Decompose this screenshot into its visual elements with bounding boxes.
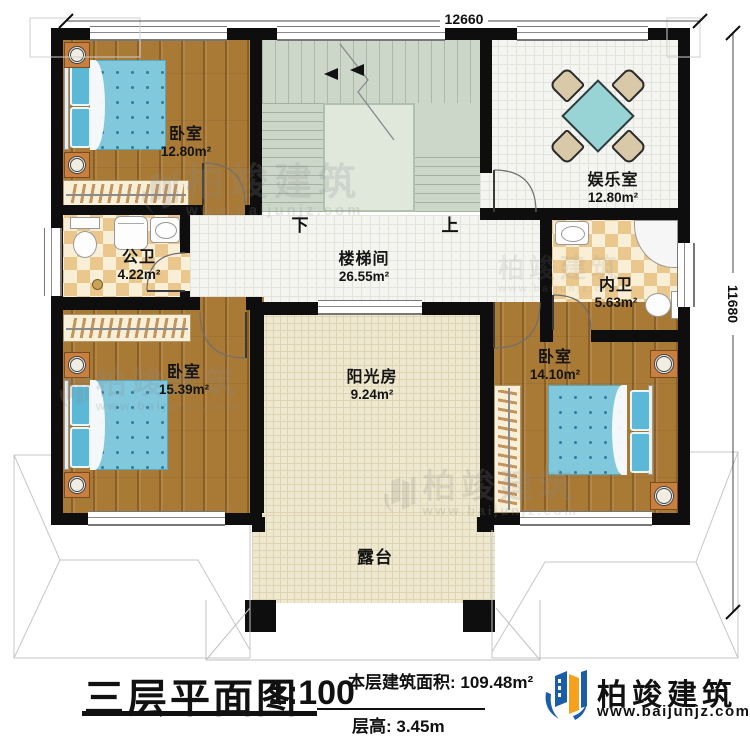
closet-rod <box>508 388 510 510</box>
stair-down-label: 下 <box>292 211 309 236</box>
room-label-sunroom: 阳光房 9.24m² <box>346 369 397 402</box>
room-label-terrace: 露台 <box>357 548 393 567</box>
washing-machine-icon <box>114 216 148 250</box>
room-label-bedroom1: 卧室 12.80m² <box>161 126 211 159</box>
room-name: 卧室 <box>530 349 580 367</box>
wardrobe <box>63 180 189 207</box>
room-label-bedroom3: 卧室 14.10m² <box>530 349 580 382</box>
room-area: 12.80m² <box>587 190 638 205</box>
game-table-set <box>552 70 644 162</box>
window <box>90 26 227 41</box>
floor-height-label: 层高: 3.45m <box>352 712 445 737</box>
wall <box>591 330 690 342</box>
terrace-column <box>245 600 276 632</box>
nightstand <box>650 350 678 378</box>
room-name: 卧室 <box>159 364 209 382</box>
room-name: 娱乐室 <box>587 172 638 190</box>
nightstand <box>64 352 90 378</box>
pillow <box>630 390 651 431</box>
nightstand <box>64 42 90 68</box>
wall <box>422 302 482 315</box>
wall <box>262 302 318 315</box>
wall <box>245 205 262 215</box>
closet-rod <box>66 194 186 196</box>
pillow <box>70 65 91 106</box>
room-name: 卧室 <box>161 126 211 144</box>
room-area: 4.22m² <box>118 267 161 282</box>
window <box>677 243 695 307</box>
room-label-private-bath: 内卫 5.63m² <box>595 277 638 310</box>
floor-drain-icon <box>92 279 103 290</box>
bed-sheet <box>612 385 627 475</box>
terrace-column <box>463 600 495 632</box>
floor-area-label: 本层建筑面积: 109.48m² <box>348 668 533 693</box>
lamp-icon <box>68 476 86 494</box>
plan-scale: 1:100 <box>268 674 355 713</box>
bed <box>64 60 166 150</box>
brand-logo-icon <box>543 666 589 722</box>
room-name: 露台 <box>357 548 393 567</box>
room-label-bedroom2: 卧室 15.39m² <box>159 364 209 397</box>
sunroom-floor <box>252 302 492 532</box>
sink-icon <box>555 221 589 245</box>
room-area: 15.39m² <box>159 382 209 397</box>
wall-column <box>477 517 492 532</box>
toilet-icon <box>70 217 100 229</box>
lamp-icon <box>68 156 86 174</box>
nightstand <box>64 152 90 178</box>
pillow <box>70 107 91 148</box>
brand-website: www.baijunjz.com <box>597 703 750 720</box>
dimension-top: 12660 <box>440 11 488 27</box>
wall <box>480 208 678 220</box>
lamp-icon <box>68 46 86 64</box>
floor-plan-canvas: 12660 11680 卧室 12.80m² 娱乐室 12.80m² 公卫 4.… <box>0 0 750 734</box>
stair-upper-flight <box>262 40 480 103</box>
room-area: 9.24m² <box>346 387 397 402</box>
room-name: 内卫 <box>595 277 638 295</box>
room-label-stair-hall: 楼梯间 26.55m² <box>338 251 389 284</box>
window <box>277 26 445 41</box>
lamp-icon <box>654 354 674 374</box>
stair-left-flight <box>262 103 323 212</box>
room-name: 阳光房 <box>346 369 397 387</box>
wall <box>540 220 552 330</box>
nightstand <box>650 482 678 510</box>
window <box>517 26 648 41</box>
wall <box>540 330 553 342</box>
bed <box>64 380 168 470</box>
room-area: 26.55m² <box>338 269 389 284</box>
stair-landing <box>323 103 415 212</box>
room-name: 楼梯间 <box>338 251 389 269</box>
closet-rod <box>66 328 188 330</box>
pillow <box>70 427 91 468</box>
room-label-public-bath: 公卫 4.22m² <box>118 249 161 282</box>
stair-right-flight <box>415 150 480 212</box>
pillow <box>630 432 651 473</box>
wall <box>250 302 264 513</box>
room-label-entertainment: 娱乐室 12.80m² <box>587 172 638 205</box>
wardrobe <box>63 314 191 342</box>
sliding-door <box>318 300 422 315</box>
wall-column <box>252 517 265 532</box>
room-area: 12.80m² <box>161 144 211 159</box>
wardrobe <box>494 385 521 513</box>
room-area: 14.10m² <box>530 367 580 382</box>
wall <box>250 28 262 215</box>
window <box>88 511 225 526</box>
headboard <box>64 380 69 470</box>
headboard <box>64 60 69 150</box>
window <box>44 228 62 296</box>
pillow <box>70 385 91 426</box>
toilet-bowl-icon <box>73 231 97 258</box>
room-area: 5.63m² <box>595 295 638 310</box>
sink-icon <box>150 217 180 243</box>
bed <box>548 385 653 475</box>
wall <box>180 215 190 253</box>
stair-up-label: 上 <box>442 211 459 236</box>
wall <box>51 205 203 215</box>
lamp-icon <box>68 356 86 374</box>
wall <box>51 297 200 310</box>
wall <box>480 302 494 532</box>
room-name: 公卫 <box>118 249 161 267</box>
window <box>520 511 652 526</box>
toilet-bowl-icon <box>645 293 671 317</box>
wall <box>480 28 492 173</box>
lamp-icon <box>654 486 674 506</box>
staircase <box>262 40 480 212</box>
nightstand <box>64 472 90 498</box>
dimension-right: 11680 <box>725 273 741 335</box>
